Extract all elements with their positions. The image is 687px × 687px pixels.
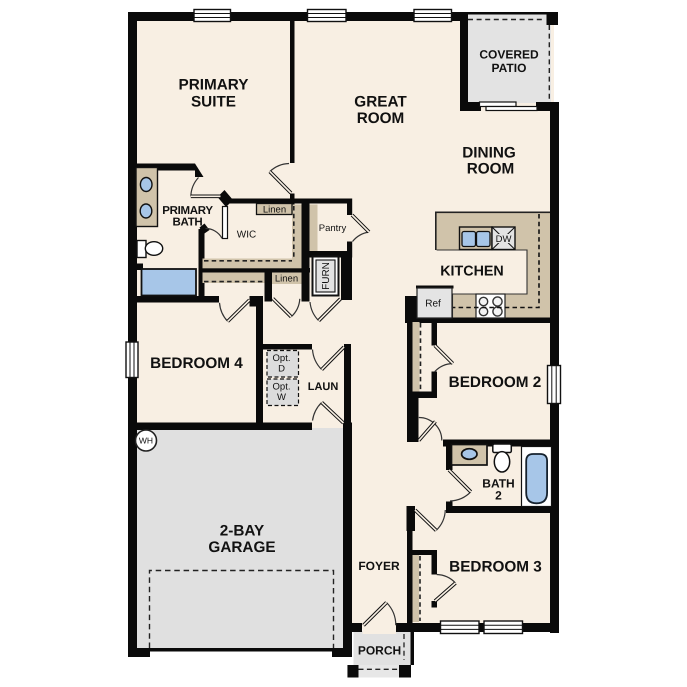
svg-text:SUITE: SUITE xyxy=(191,94,236,111)
svg-text:DINING: DINING xyxy=(462,145,516,162)
svg-text:Ref: Ref xyxy=(425,299,441,310)
svg-text:GARAGE: GARAGE xyxy=(208,539,275,556)
svg-text:2: 2 xyxy=(495,489,502,503)
svg-text:D: D xyxy=(278,364,285,375)
svg-text:ROOM: ROOM xyxy=(357,110,405,127)
svg-text:ROOM: ROOM xyxy=(467,161,515,178)
svg-text:2-BAY: 2-BAY xyxy=(220,523,265,540)
svg-text:DW: DW xyxy=(496,234,512,245)
svg-text:BEDROOM 4: BEDROOM 4 xyxy=(150,355,243,372)
svg-text:WIC: WIC xyxy=(237,230,256,241)
svg-text:Opt.: Opt. xyxy=(273,353,291,364)
svg-text:Linen: Linen xyxy=(275,274,298,285)
svg-text:PRIMARY: PRIMARY xyxy=(179,77,249,94)
svg-text:BATH: BATH xyxy=(173,217,203,229)
svg-text:FOYER: FOYER xyxy=(358,559,400,573)
svg-text:Pantry: Pantry xyxy=(319,223,347,234)
svg-text:Opt.: Opt. xyxy=(273,382,291,393)
svg-text:PORCH: PORCH xyxy=(358,644,401,658)
svg-text:FURN: FURN xyxy=(321,262,332,290)
svg-text:PATIO: PATIO xyxy=(492,61,527,75)
svg-text:KITCHEN: KITCHEN xyxy=(440,264,504,280)
svg-text:PRIMARY: PRIMARY xyxy=(162,205,213,217)
svg-text:WH: WH xyxy=(139,436,153,446)
svg-text:Linen: Linen xyxy=(263,205,286,216)
svg-text:GREAT: GREAT xyxy=(354,94,407,111)
svg-text:BEDROOM 2: BEDROOM 2 xyxy=(449,374,542,391)
svg-text:W: W xyxy=(277,392,286,403)
svg-text:LAUN: LAUN xyxy=(308,381,339,393)
svg-text:BEDROOM 3: BEDROOM 3 xyxy=(449,559,542,576)
svg-text:COVERED: COVERED xyxy=(479,48,539,62)
